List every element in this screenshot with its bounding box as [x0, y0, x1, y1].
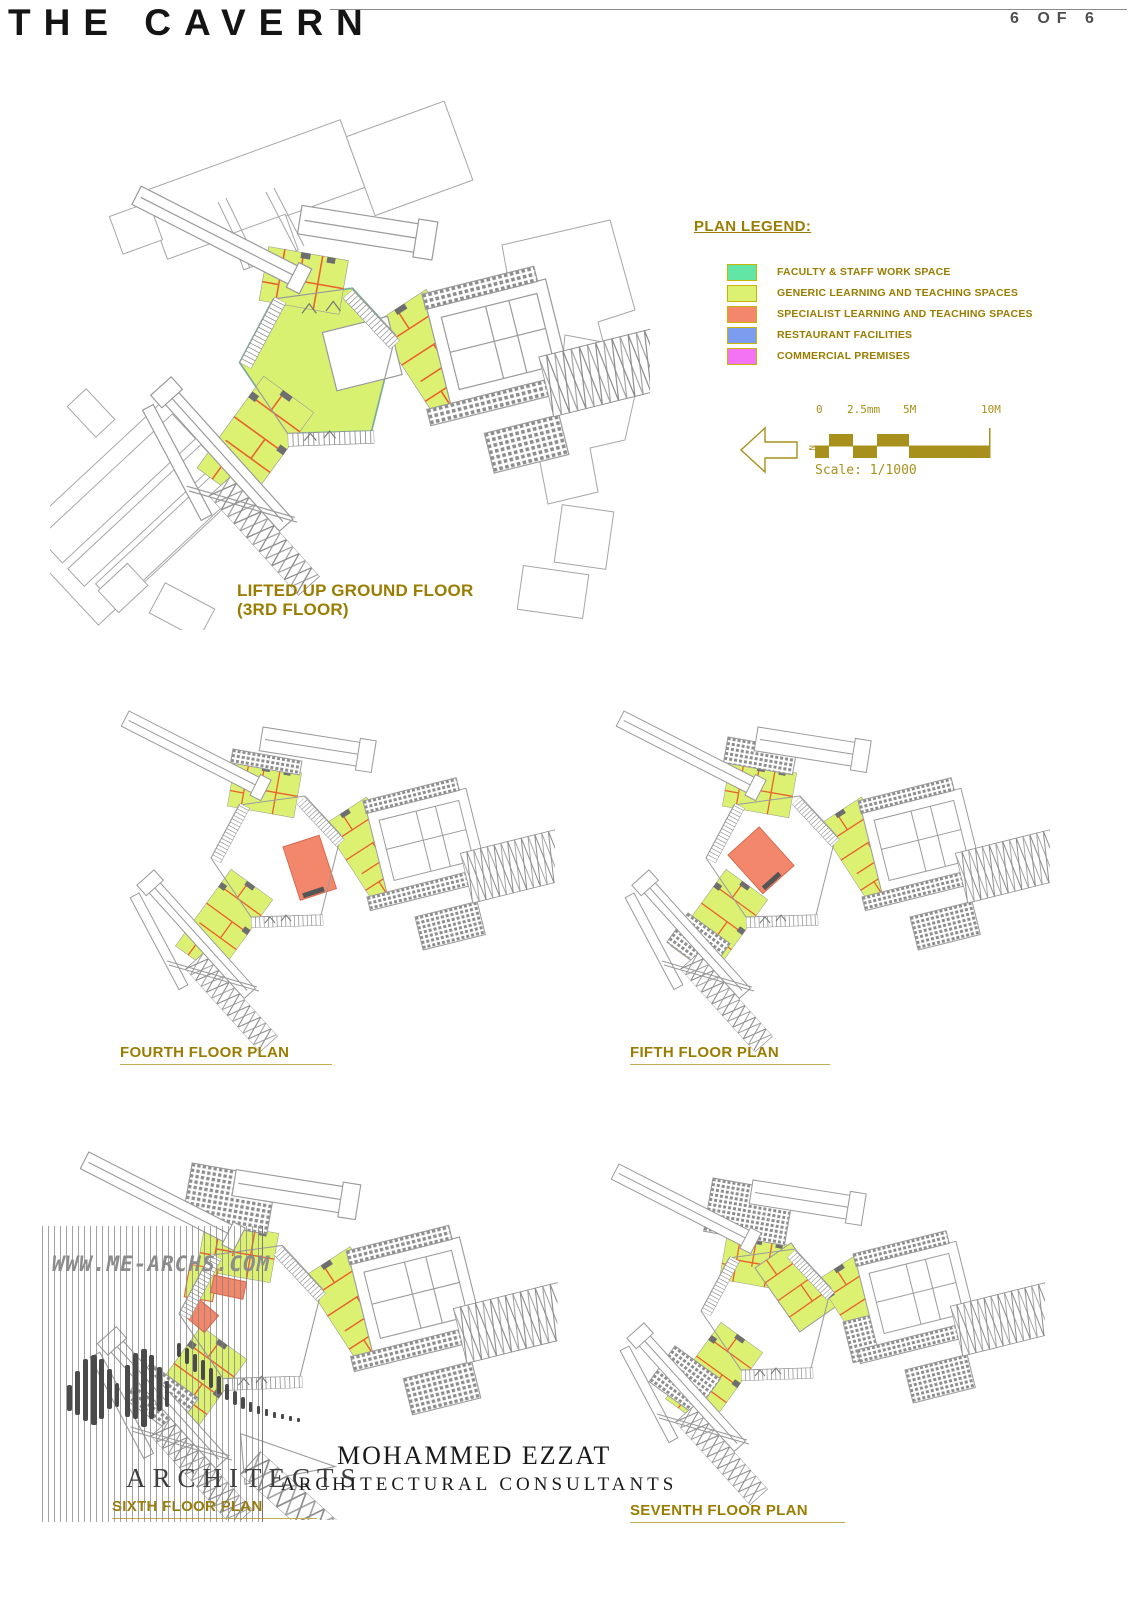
fourth-floor-plan — [115, 665, 555, 1065]
legend-label: GENERIC LEARNING AND TEACHING SPACES — [777, 287, 1017, 299]
scale-tick: 10M — [981, 403, 1001, 416]
scale-bar-cells — [815, 428, 991, 458]
seventh-floor-plan — [605, 1118, 1075, 1523]
watermark-url: WWW.ME-ARCHS.COM — [52, 1252, 270, 1276]
scale-text: Scale: 1/1000 — [815, 463, 917, 478]
seventh-floor-label: SEVENTH FLOOR PLAN — [630, 1502, 845, 1523]
legend-swatch-specialist — [727, 306, 757, 323]
legend-swatch-faculty — [727, 264, 757, 281]
scale-tick: 2.5mm — [847, 403, 880, 416]
legend-title: PLAN LEGEND: — [694, 218, 811, 235]
fourth-floor-label: FOURTH FLOOR PLAN — [120, 1044, 332, 1065]
main-floor-plan — [50, 100, 650, 630]
header-rule — [330, 9, 1127, 10]
drawing-sheet: THE CAVERN 6 OF 6 — [0, 0, 1133, 1600]
consultant-subtitle: ARCHITECTURAL CONSULTANTS — [281, 1474, 677, 1496]
scale-bar: N 0 2.5mm 5M 10M Scale: 1/1000 — [735, 398, 1015, 488]
legend-swatch-commercial — [727, 348, 757, 365]
legend-label: COMMERCIAL PREMISES — [777, 350, 1017, 362]
fifth-floor-label: FIFTH FLOOR PLAN — [630, 1044, 830, 1065]
north-arrow-icon: N — [741, 428, 816, 472]
scale-tick: 0 — [816, 403, 823, 416]
legend-label: SPECIALIST LEARNING AND TEACHING SPACES — [777, 308, 1017, 320]
legend-swatch-restaurant — [727, 327, 757, 344]
specialist-space — [283, 835, 336, 900]
page-number: 6 OF 6 — [1010, 10, 1101, 28]
scale-tick: 5M — [903, 403, 917, 416]
legend-swatch-generic — [727, 285, 757, 302]
fifth-floor-plan — [610, 665, 1050, 1065]
page-title: THE CAVERN — [8, 2, 376, 44]
svg-text:N: N — [806, 445, 816, 450]
legend-label: RESTAURANT FACILITIES — [777, 329, 1017, 341]
main-plan-title: LIFTED UP GROUND FLOOR (3RD FLOOR) — [237, 581, 473, 619]
legend-label: FACULTY & STAFF WORK SPACE — [777, 266, 1017, 278]
consultant-name: MOHAMMED EZZAT — [337, 1441, 611, 1471]
